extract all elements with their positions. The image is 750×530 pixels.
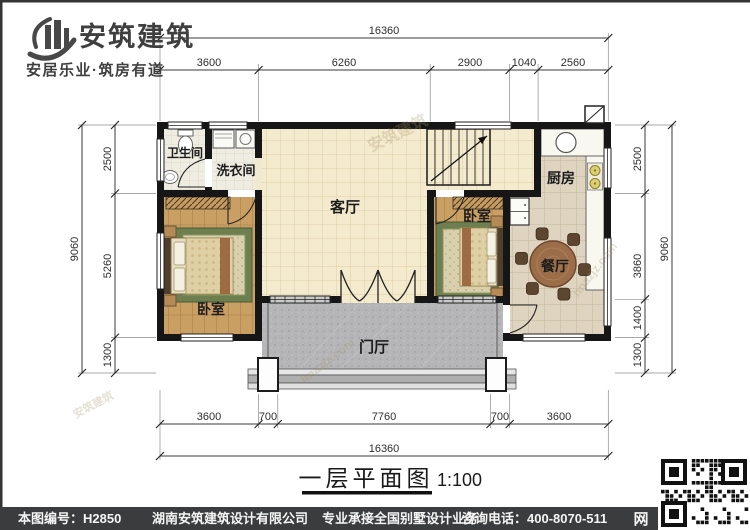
dim-right-3: 1400 — [632, 306, 644, 330]
window-top-laundry — [209, 122, 247, 129]
window-top-stair — [455, 122, 511, 129]
title-underline — [302, 491, 432, 495]
dim-left-1: 2500 — [102, 147, 114, 171]
window-bottom-dining — [523, 334, 585, 341]
bedroom-right-label: 卧室 — [463, 208, 491, 224]
phone-number: 咨询电话：400-8070-511 — [462, 511, 607, 526]
plan-scale: 1:100 — [437, 470, 482, 490]
window-bottom-bedroom-left — [181, 334, 233, 341]
porch-step-1 — [248, 369, 516, 375]
porch-column-left — [258, 358, 278, 391]
watermark-brand: 安筑建筑 — [70, 388, 115, 421]
window-left-bedroom — [157, 233, 164, 289]
dining-chair — [568, 234, 580, 246]
plan-title: 一层平面图 — [299, 465, 434, 491]
dining-chair — [558, 288, 570, 300]
foyer-label: 门厅 — [359, 338, 389, 356]
dim-top-3: 2900 — [458, 57, 482, 69]
floor-plan-sheet: 卫生间 洗衣间 客厅 厨房 卧室 卧室 餐厅 门厅 安筑建筑 hnazjz.co… — [0, 0, 750, 530]
logo-title: 安筑建筑 — [79, 21, 195, 52]
dim-bottom-2: 700 — [259, 411, 277, 423]
dim-bottom-1: 3600 — [197, 411, 221, 423]
footer-bar: 本图编号：H2850 湖南安筑建筑设计有限公司 专业承接全国别墅设计业务 咨询电… — [0, 507, 750, 530]
company-name: 湖南安筑建筑设计有限公司 — [152, 511, 308, 526]
logo-icon — [30, 19, 74, 58]
net-label: 网 — [633, 511, 648, 528]
nightstand — [164, 226, 176, 237]
nightstand — [164, 295, 176, 306]
logo-tagline: 安居乐业·筑房有道 — [26, 61, 165, 79]
dim-right-1: 2500 — [632, 147, 644, 171]
kitchen-label: 厨房 — [547, 170, 575, 186]
sheet-left-border — [0, 0, 3, 530]
window-left-bathroom — [157, 139, 164, 181]
dim-top-2: 6260 — [332, 57, 356, 69]
wardrobe-left — [166, 197, 230, 209]
stove — [588, 163, 603, 190]
porch-column-right — [486, 358, 506, 391]
dining-chair — [516, 252, 528, 264]
dim-top-5: 2560 — [561, 57, 585, 69]
floor-plan-drawing: 卫生间 洗衣间 客厅 厨房 卧室 卧室 餐厅 门厅 安筑建筑 hnazjz.co… — [0, 0, 750, 530]
nightstand — [491, 216, 503, 227]
living-label: 客厅 — [329, 198, 360, 216]
drawing-number: 本图编号：H2850 — [18, 511, 121, 526]
fridge — [510, 198, 529, 225]
dim-top-total: 16360 — [369, 25, 400, 37]
window-bottom-living-left — [270, 296, 330, 303]
flue-vent — [585, 106, 604, 123]
window-right-kitchen — [604, 148, 611, 188]
dim-bottom-3: 7760 — [372, 411, 396, 423]
dim-right-2: 3860 — [632, 254, 644, 278]
dining-chair — [536, 228, 548, 240]
dim-right-4: 1300 — [632, 343, 644, 367]
dim-bottom-5: 3600 — [547, 411, 571, 423]
porch-floor — [262, 303, 503, 369]
porch-step-2 — [248, 375, 516, 383]
company-services: 专业承接全国别墅设计业务 — [322, 511, 479, 526]
dim-bottom-total: 16360 — [369, 443, 400, 455]
dim-left-3: 1300 — [102, 343, 114, 367]
sheet-top-border — [0, 0, 750, 3]
kitchen-sink — [556, 133, 576, 153]
dim-left-2: 5260 — [102, 254, 114, 278]
qr-code — [658, 456, 750, 530]
dining-chair — [526, 283, 538, 295]
washing-machines — [213, 130, 255, 148]
bed-right — [460, 228, 503, 286]
laundry-label: 洗衣间 — [216, 163, 255, 178]
dim-left-total: 9060 — [69, 237, 81, 261]
bed-left — [164, 238, 233, 294]
dim-bottom-4: 700 — [491, 411, 509, 423]
window-bottom-bedroom-right — [438, 296, 496, 303]
bedroom-left-label: 卧室 — [197, 301, 225, 317]
dining-label: 餐厅 — [540, 258, 569, 274]
dim-top-4: 1040 — [512, 57, 536, 69]
drawing-title: 一层平面图 1:100 — [299, 465, 483, 495]
dim-right-total: 9060 — [659, 237, 671, 261]
bedroom-left-furniture — [164, 226, 252, 306]
bathroom-label: 卫生间 — [167, 145, 203, 160]
window-top-bathroom — [168, 122, 202, 129]
dim-top-1: 3600 — [197, 57, 221, 69]
porch-step-3 — [248, 383, 516, 389]
bedroom-right-furniture — [436, 216, 503, 300]
